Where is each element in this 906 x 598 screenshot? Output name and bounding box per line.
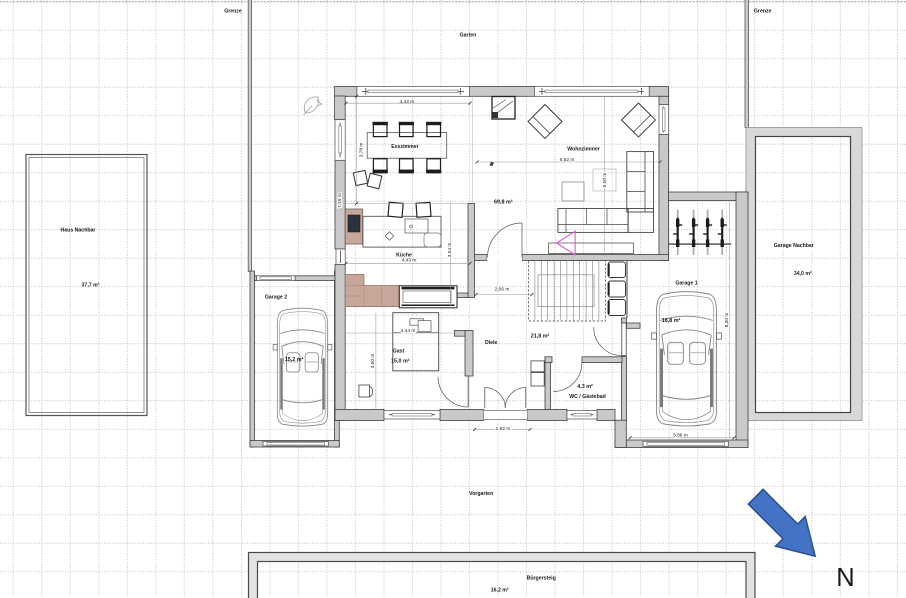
svg-text:Wohnzimmer: Wohnzimmer (567, 147, 599, 153)
svg-text:3,50 m: 3,50 m (370, 354, 376, 369)
svg-text:Gast: Gast (393, 348, 405, 354)
svg-text:Garage 2: Garage 2 (265, 294, 287, 300)
svg-text:Bürgersteig: Bürgersteig (527, 575, 556, 581)
svg-text:N: N (836, 564, 854, 592)
svg-text:Esszimmer: Esszimmer (391, 144, 418, 150)
svg-text:5,50 m: 5,50 m (602, 173, 608, 188)
svg-text:1,92 m: 1,92 m (496, 426, 511, 432)
svg-text:21,8 m²: 21,8 m² (531, 334, 550, 340)
svg-text:Garage Nachbar: Garage Nachbar (774, 243, 814, 249)
svg-text:3,86 m: 3,86 m (673, 433, 688, 439)
svg-text:16,2 m²: 16,2 m² (491, 588, 509, 594)
svg-text:Grenze: Grenze (754, 9, 772, 15)
svg-text:37,7 m²: 37,7 m² (82, 282, 100, 288)
svg-text:7,49 m: 7,49 m (337, 193, 343, 208)
svg-text:Haus Nachbar: Haus Nachbar (61, 227, 96, 233)
svg-text:WC / Gästebad: WC / Gästebad (569, 394, 606, 400)
svg-text:Grenze: Grenze (224, 9, 242, 15)
svg-text:2,06 m: 2,06 m (495, 287, 510, 293)
svg-text:6,52 m: 6,52 m (560, 157, 575, 163)
svg-text:3,78 m: 3,78 m (358, 143, 364, 158)
svg-text:Diele: Diele (485, 340, 498, 346)
svg-text:Küche: Küche (396, 252, 412, 258)
svg-text:15,0 m²: 15,0 m² (391, 359, 410, 365)
svg-text:69,8 m²: 69,8 m² (494, 200, 513, 206)
svg-text:4,44 m: 4,44 m (401, 328, 416, 334)
svg-text:3,54 m: 3,54 m (447, 243, 453, 258)
svg-text:Garage 1: Garage 1 (675, 280, 697, 286)
svg-text:18,8 m²: 18,8 m² (662, 318, 681, 324)
svg-text:4,43 m: 4,43 m (399, 99, 414, 105)
svg-text:34,0 m²: 34,0 m² (794, 271, 812, 277)
svg-text:Vorgarten: Vorgarten (469, 491, 493, 497)
svg-text:8,30 m: 8,30 m (724, 313, 730, 328)
svg-text:4,3 m²: 4,3 m² (577, 384, 593, 390)
svg-text:15,2 m²: 15,2 m² (285, 357, 304, 363)
svg-text:Garten: Garten (460, 32, 477, 38)
